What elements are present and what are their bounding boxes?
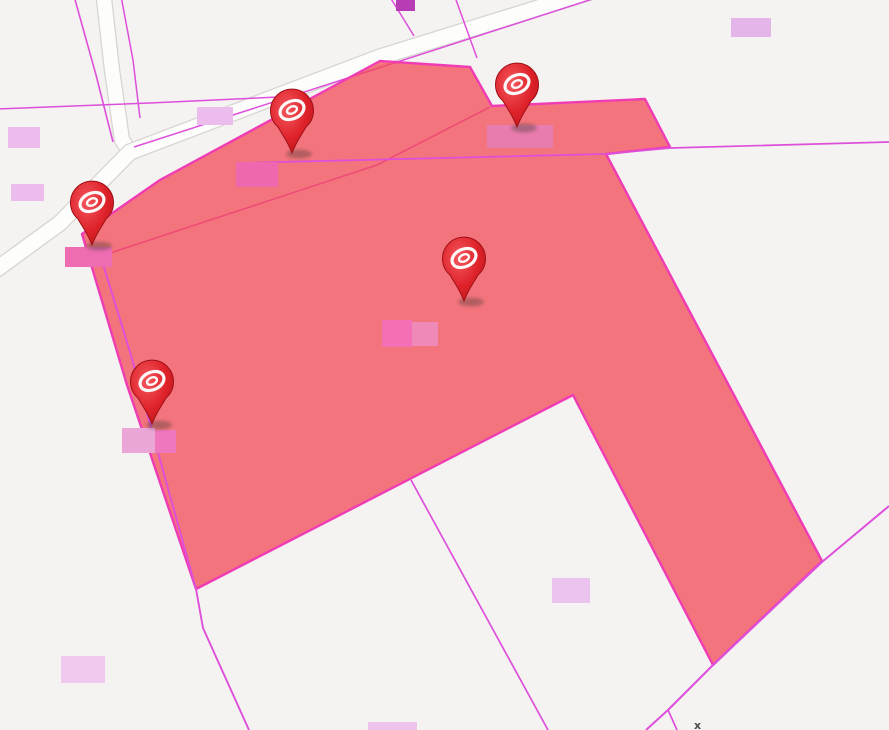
map-svg[interactable]: x (0, 0, 889, 730)
map-canvas[interactable]: x (0, 0, 889, 730)
redacted-parcel-label (396, 0, 415, 11)
redacted-parcel-label (11, 184, 44, 201)
redacted-parcel-label (65, 247, 112, 267)
redacted-parcel-label (368, 722, 417, 730)
map-pin-marker-1-shadow (86, 242, 112, 251)
map-pin-marker-4-shadow (458, 298, 484, 307)
redacted-parcel-label (61, 656, 105, 683)
map-pin-marker-2-shadow (286, 150, 312, 159)
redacted-parcel-label (155, 430, 176, 453)
map-pin-marker-5-shadow (146, 421, 172, 430)
redacted-parcel-label (412, 322, 438, 346)
redacted-parcel-label (236, 162, 278, 187)
redacted-parcel-label (8, 127, 40, 148)
redacted-parcel-label (552, 578, 590, 603)
redacted-parcel-label (731, 18, 771, 37)
redacted-parcel-label (382, 320, 412, 347)
map-pin-marker-3-shadow (511, 124, 537, 133)
redacted-parcel-label (197, 107, 233, 125)
redacted-parcel-label (122, 428, 155, 453)
map-artifact-text: x (694, 719, 701, 730)
